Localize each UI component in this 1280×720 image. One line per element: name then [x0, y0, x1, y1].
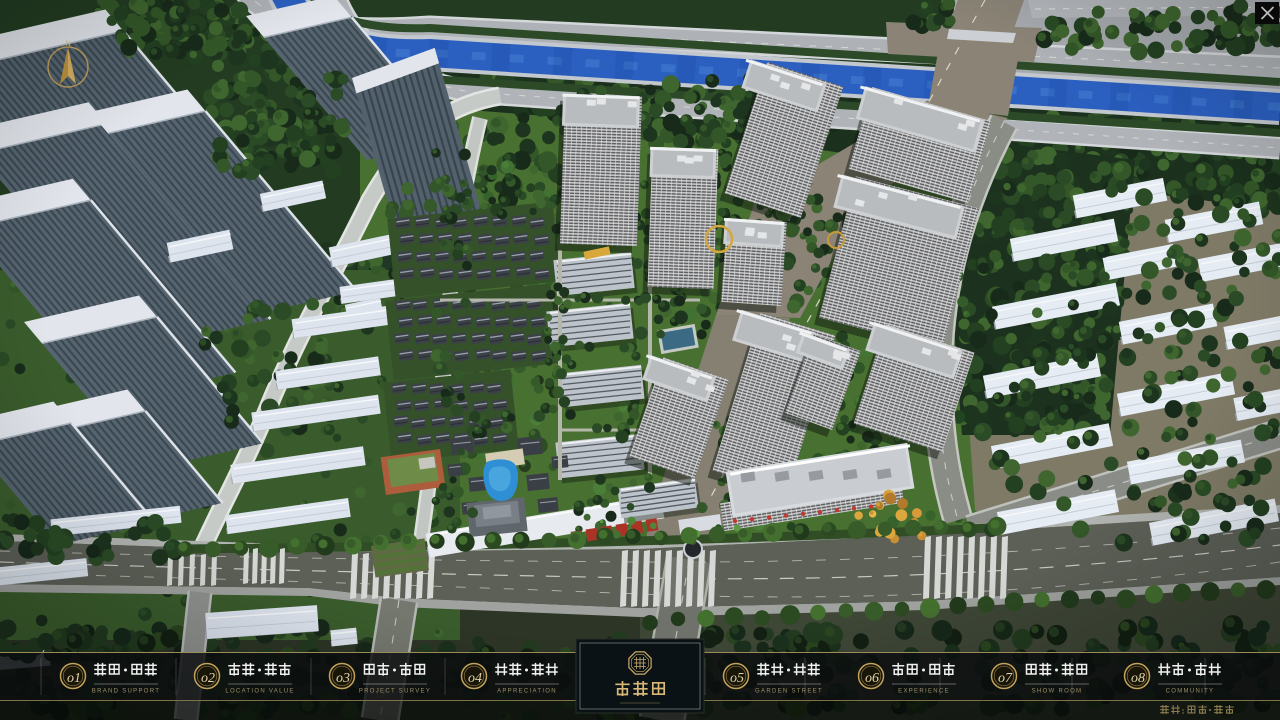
svg-text:EXPERIENCE: EXPERIENCE	[898, 689, 950, 695]
svg-text:o2: o2	[201, 671, 215, 686]
svg-text:o3: o3	[336, 671, 350, 686]
svg-text:LOCATION VALUE: LOCATION VALUE	[225, 689, 294, 695]
svg-text:BRAND SUPPORT: BRAND SUPPORT	[92, 689, 160, 695]
svg-text:o1: o1	[67, 671, 81, 686]
svg-text:GARDEN STREET: GARDEN STREET	[755, 689, 823, 695]
svg-text:o4: o4	[468, 671, 482, 686]
svg-text:o8: o8	[1131, 671, 1145, 686]
svg-text:o6: o6	[865, 671, 879, 686]
svg-text:PROJECT SURVEY: PROJECT SURVEY	[359, 689, 431, 695]
svg-text:APPRECIATION: APPRECIATION	[497, 689, 557, 695]
svg-text:o7: o7	[998, 671, 1013, 686]
svg-text:COMMUNITY: COMMUNITY	[1166, 689, 1215, 695]
svg-text:SHOW ROOM: SHOW ROOM	[1032, 689, 1083, 695]
svg-text:o5: o5	[730, 671, 744, 686]
